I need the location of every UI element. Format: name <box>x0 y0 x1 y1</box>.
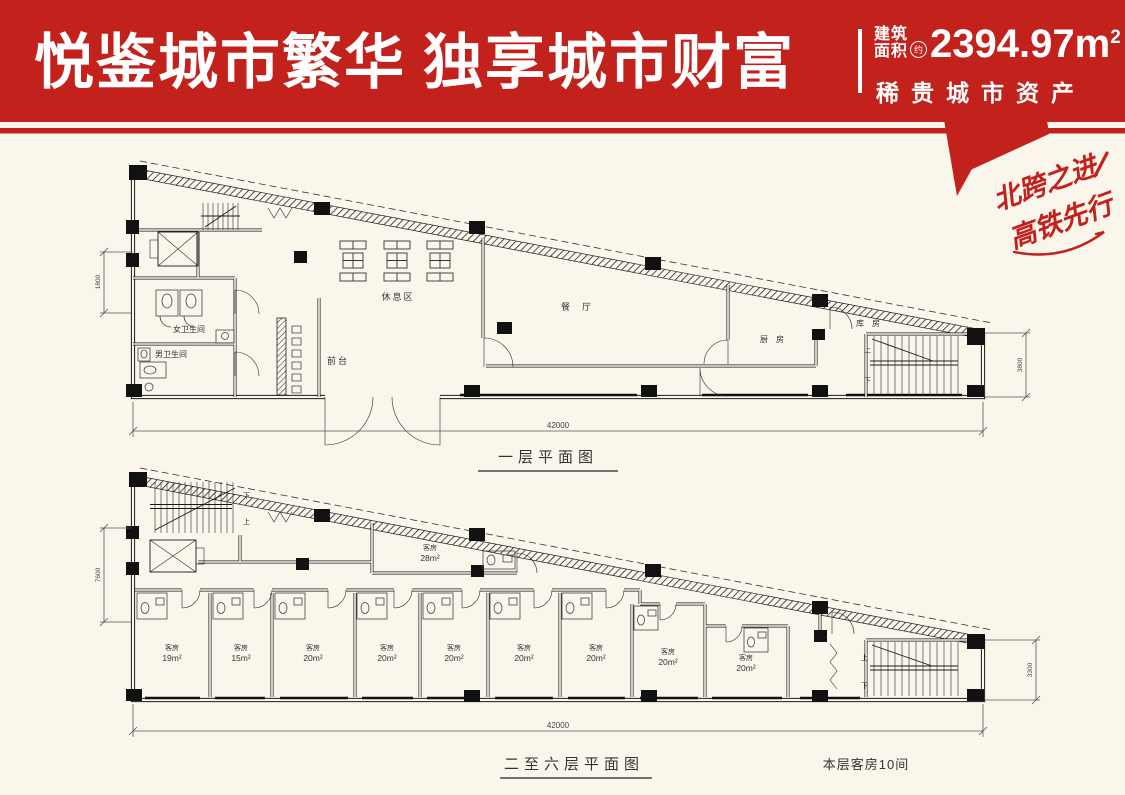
stair-up-label: 上 <box>243 517 250 526</box>
room-label-kitchen: 厨房 <box>760 334 792 344</box>
room-count-note: 本层客房10间 <box>823 757 909 772</box>
lounge-table-set <box>384 241 410 281</box>
floor2-title: 二至六层平面图 <box>504 756 644 773</box>
room-name: 客房 <box>165 643 179 652</box>
floor1-plan: 休息区 餐厅 厨房 库房 前台 女卫生间 男卫生间 上 下 42000 1800… <box>95 161 1030 471</box>
stair-up-label: 上 <box>864 345 871 354</box>
floor2-dimensions: 42000 7600 3300 <box>95 524 1040 737</box>
dim-left: 7600 <box>95 567 102 582</box>
stair-down-label: 下 <box>864 377 871 385</box>
calligraphy-flick <box>1095 153 1107 176</box>
dim-bottom: 42000 <box>547 721 570 730</box>
room-28-area: 28m² <box>420 553 440 563</box>
room-name: 客房 <box>739 653 753 662</box>
room-area: 20m² <box>586 653 606 663</box>
dim-bottom: 42000 <box>547 421 570 430</box>
lounge-table-set <box>427 241 453 281</box>
stair-down-label: 下 <box>861 682 868 690</box>
dim-right: 3800 <box>1017 357 1024 372</box>
room-28-name: 客房 <box>423 543 437 552</box>
room-area: 20m² <box>303 653 323 663</box>
room-label-storage: 库房 <box>856 318 888 328</box>
room-area: 20m² <box>658 657 678 667</box>
flyer-page: 悦鉴城市繁华 独享城市财富 建筑 面积 约 2394.97m2 稀贵城市资产 <box>0 0 1125 795</box>
room-name: 客房 <box>234 643 248 652</box>
room-name: 客房 <box>661 647 675 656</box>
wc-fixtures <box>138 290 234 391</box>
room-area: 20m² <box>444 653 464 663</box>
front-desk-counter <box>277 318 286 395</box>
room-name: 客房 <box>380 643 394 652</box>
room-area: 15m² <box>231 653 251 663</box>
ribbon-flag: 北跨之进 高铁先行 <box>0 120 1125 255</box>
room-name: 客房 <box>447 643 461 652</box>
room-name: 客房 <box>306 643 320 652</box>
guest-bathrooms <box>137 551 768 652</box>
dim-right: 3300 <box>1027 662 1034 677</box>
guest-room-labels: 客房 19m² 客房 15m² 客房 20m² 客房 20m² 客房 20m² … <box>162 643 756 673</box>
room-area: 19m² <box>162 653 182 663</box>
room-label-rest-area: 休息区 <box>381 291 414 302</box>
room-area: 20m² <box>377 653 397 663</box>
floorplan-canvas: 北跨之进 高铁先行 <box>0 0 1125 795</box>
dim-left: 1800 <box>95 274 102 289</box>
room-area: 20m² <box>514 653 534 663</box>
floor1-title: 一层平面图 <box>498 449 598 466</box>
floor2-plan: 客房 28m² 客房 19m² 客房 15m² 客房 20m² 客房 20m² … <box>95 468 1040 778</box>
room-name: 客房 <box>517 643 531 652</box>
room-label-front-desk: 前台 <box>327 355 349 366</box>
stair-down-label: 下 <box>243 492 250 500</box>
stair-up-label: 上 <box>861 653 868 662</box>
room-label-dining: 餐厅 <box>561 301 603 312</box>
room-area: 20m² <box>736 663 756 673</box>
room-name: 客房 <box>589 643 603 652</box>
room-label-mens-wc: 男卫生间 <box>155 349 187 359</box>
lounge-table-set <box>340 241 366 281</box>
room-label-womens-wc: 女卫生间 <box>173 324 205 334</box>
